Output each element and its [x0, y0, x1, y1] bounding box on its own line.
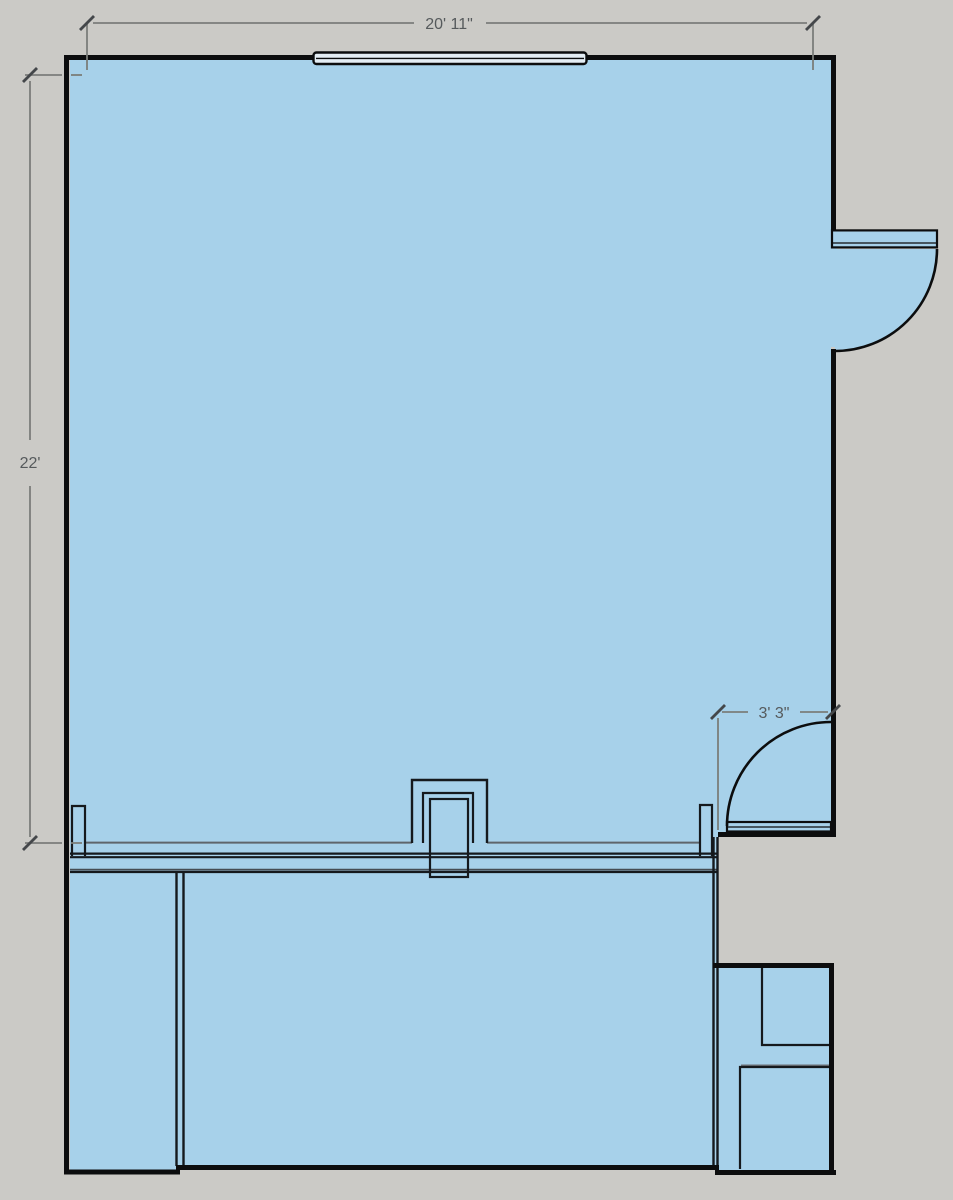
dimension-door-label: 3' 3": [759, 705, 790, 722]
floor-surface: [70, 60, 937, 1175]
floor-plan-canvas: 20' 11" 22' 3' 3": [0, 0, 953, 1200]
upper-door-leaf: [832, 230, 937, 247]
window: [314, 53, 587, 65]
dimension-top-label: 20' 11": [425, 16, 473, 33]
dimension-left-label: 22': [20, 455, 41, 472]
floor-bottom-right-room: [715, 963, 834, 1175]
